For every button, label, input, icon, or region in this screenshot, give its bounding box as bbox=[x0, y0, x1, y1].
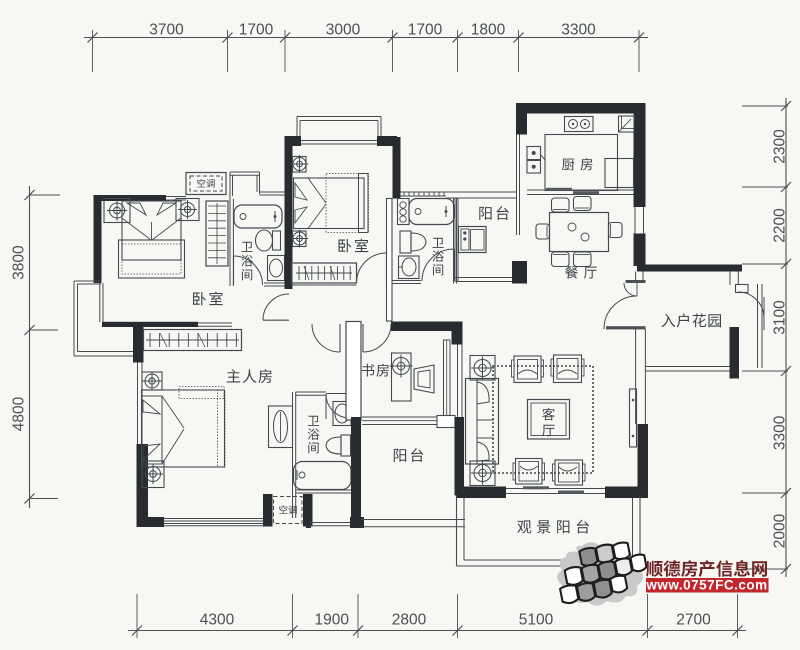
svg-text:1700: 1700 bbox=[239, 21, 274, 38]
svg-text:5100: 5100 bbox=[519, 611, 554, 628]
svg-text:3300: 3300 bbox=[561, 21, 596, 38]
svg-text:2000: 2000 bbox=[771, 513, 788, 548]
svg-text:2200: 2200 bbox=[771, 208, 788, 243]
svg-text:3800: 3800 bbox=[11, 245, 28, 280]
svg-text:2800: 2800 bbox=[392, 611, 427, 628]
svg-text:3100: 3100 bbox=[771, 300, 788, 335]
svg-text:www.0757FC.com: www.0757FC.com bbox=[645, 578, 767, 593]
svg-text:2300: 2300 bbox=[771, 129, 788, 164]
svg-text:3000: 3000 bbox=[326, 21, 361, 38]
svg-text:4300: 4300 bbox=[200, 611, 235, 628]
svg-text:1800: 1800 bbox=[471, 21, 506, 38]
svg-text:3300: 3300 bbox=[771, 415, 788, 450]
svg-text:1900: 1900 bbox=[314, 611, 349, 628]
svg-text:2700: 2700 bbox=[676, 611, 711, 628]
svg-text:1700: 1700 bbox=[408, 21, 443, 38]
svg-text:4800: 4800 bbox=[11, 396, 28, 431]
svg-text:3700: 3700 bbox=[149, 21, 184, 38]
